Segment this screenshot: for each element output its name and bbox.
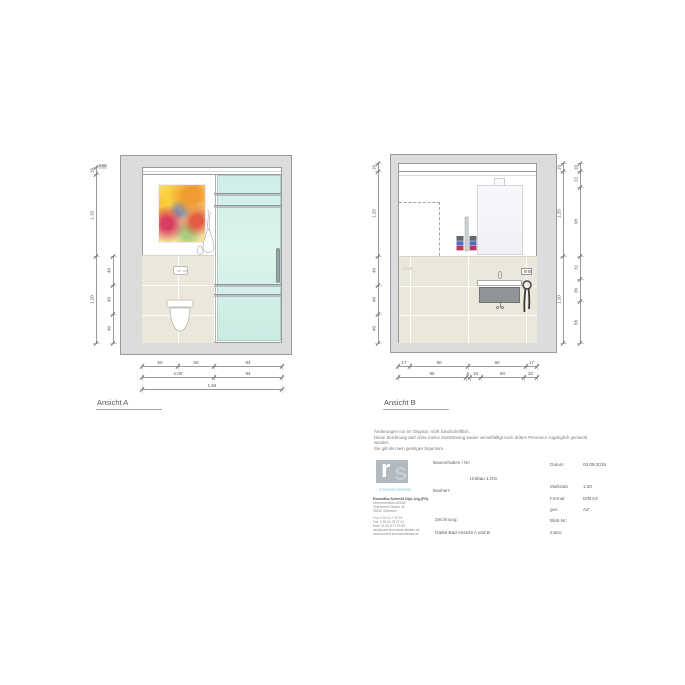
flush-button [177,270,181,273]
drawing-sheet: 101.181.20 404040 505094 1.0094 1.94 2.5… [0,0,685,685]
dim-label: 40 [372,285,377,315]
tile-faint-mark [403,267,413,270]
dim-label: 40 [107,285,112,315]
address-line: 33330 Gütersloh [373,510,406,514]
zeichnung-label: Zeichnung: [435,517,458,522]
flush-button [183,270,187,273]
view-b-ceiling-band [399,164,536,172]
field-label-massstab: Maßstab [550,484,568,489]
field-label-format: Format [550,496,565,501]
notice-line: Sie gilt als mein geistiges Eigentum. [374,446,664,452]
dim-label: 95 [417,371,447,376]
field-value-datum: 03.09.2015 [583,462,606,467]
field-label-blattnr: Blatt-Nr: [550,518,567,523]
tile-grout [142,285,214,286]
dim-label: 50 [181,360,211,365]
dim-label: 10 [90,156,95,186]
dim-label: 15 [461,371,491,376]
dim-label: 20 [516,371,546,376]
dim-label: 17 [517,360,547,365]
view-a-title: Ansicht A [96,398,162,410]
copyright-notice: Änderungen nur im Original, nicht handsc… [374,429,664,451]
drain-valve [501,306,504,309]
dim-label: 40 [372,256,377,286]
dim-label: 10 [557,152,562,182]
logo-letter-s: s [394,462,407,484]
dim-label: 1.20 [372,199,377,229]
dim-label: 80 [482,360,512,365]
dim-label: 1.20 [557,199,562,229]
field-label-datum: Datum [550,462,564,467]
dim-label: 30 [574,275,579,305]
logo-subtitle: innenarchitektur [379,487,412,492]
dim-label: 94 [233,360,263,365]
field-value-massstab: 1:20 [583,484,592,489]
dim-label: 60 [488,371,518,376]
dim-label: 1.94 [197,383,227,388]
glass-door-rail [214,193,281,196]
door-handle [276,248,280,283]
vanity-counter [477,280,522,286]
flower-vase [196,206,216,256]
dim-label: 1.18 [90,200,95,230]
zeichnung-value: Gäste Bad Ansicht A und B [435,530,490,535]
dim-label: 1.20 [90,285,95,315]
bauvorhaben-label: Bauvorhaben / Nr: [433,460,470,465]
socket-outlet [524,270,527,273]
toilet [164,297,196,335]
dim-label: 1.00 [163,371,193,376]
dim-label: 98 [574,207,579,237]
shower-fitting-towels [456,216,477,253]
power-socket [521,268,532,275]
socket-outlet [528,270,531,273]
half-wall-edge [215,175,216,342]
dim-label: 80 [424,360,454,365]
mirror-cabinet [477,185,523,255]
field-value-gez: AZ [583,507,589,512]
company-address: Innenarchitektin AKBW Gütersloher Straße… [373,502,406,514]
towel-holder [519,279,535,317]
field-label-gez: gez. [550,507,559,512]
dim-label: 40 [372,314,377,344]
dim-label: 1.20 [557,285,562,315]
vanity-front [479,287,520,303]
view-a-ceiling-band [143,168,281,175]
glass-door-rail [214,205,281,208]
tile-grout [399,315,537,316]
view-b-title: Ansicht B [383,398,449,410]
bauvorhaben-value: Umbau 1.OG [470,476,497,481]
glass-door [217,175,281,341]
dim-label: 58 [574,307,579,337]
dim-label: 22 [574,164,579,194]
tile-grout [468,257,469,343]
field-value-format: DIN A3 [583,496,598,501]
drain-valve [496,306,499,309]
height-note: 2.50 [98,164,107,169]
dim-label: 94 [233,371,263,376]
contact-line: www.schmitt-innenarchitektur.de [373,533,419,537]
dim-label: 50 [145,360,175,365]
view-a-ceiling-hairline [143,171,281,172]
flush-plate [173,266,188,275]
logo-letter-r: r [381,459,390,481]
dim-label: 40 [107,256,112,286]
wall-tap [498,271,502,279]
view-b-ceiling-hairline [399,175,536,176]
dim-label: 17 [389,360,419,365]
company-contact: Fon: 0 52 41 7 49 18 Fax: 0 52 41 78 37 … [373,517,419,537]
bauherr-label: Bauherr: [433,488,451,493]
field-label-index: Index: [550,530,563,535]
dim-label: 10 [372,152,377,182]
glass-door-rail [214,294,281,297]
dim-label: 40 [107,314,112,344]
glass-door-rail [214,284,281,287]
